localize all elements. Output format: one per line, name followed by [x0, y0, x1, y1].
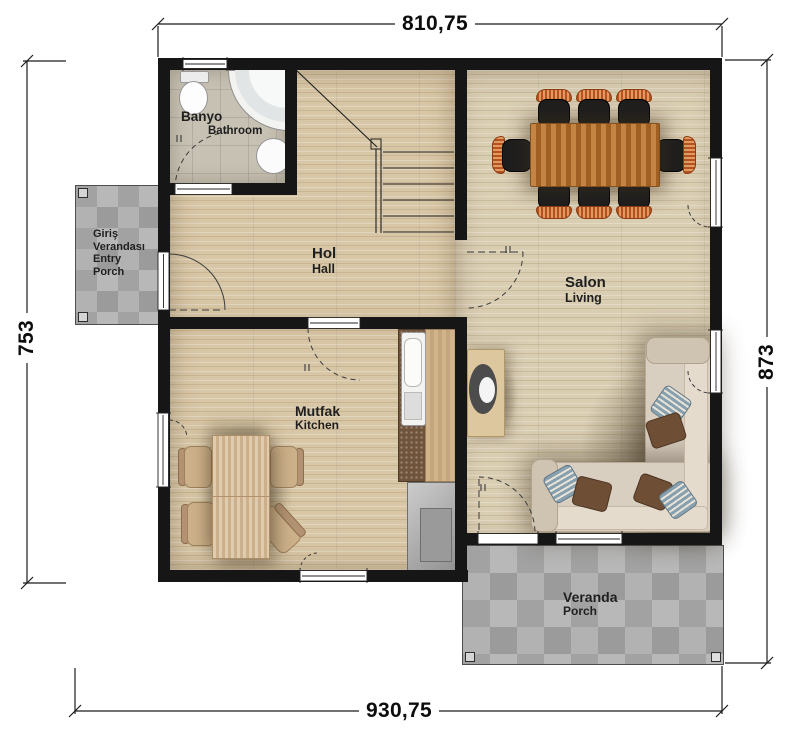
salon-label-tr: Salon [565, 274, 606, 291]
hall-label: Hol Hall [312, 245, 336, 277]
salon-label: Salon Living [565, 274, 606, 306]
window-kitchen-bottom [300, 568, 367, 583]
entry-porch-label-en: Entry Porch [93, 253, 151, 278]
window-swing-arc [300, 553, 318, 571]
entry-porch-label-tr: Giriş Verandası [93, 228, 151, 253]
bathroom-label-tr: Banyo [181, 109, 262, 125]
window-kitchen-left [156, 413, 171, 487]
salon-door-arc [467, 252, 523, 308]
veranda-label-en: Porch [563, 605, 617, 619]
stair-cut-line [295, 69, 377, 147]
kitchen-label-en: Kitchen [295, 419, 340, 433]
stair-newel [371, 139, 381, 149]
veranda-door-arc [479, 477, 535, 533]
hall-label-tr: Hol [312, 245, 336, 262]
staircase [295, 69, 454, 233]
dimension-left: 753 [15, 313, 39, 363]
kitchen-door-arc [308, 328, 360, 380]
door-arcs [169, 132, 710, 571]
entry-door-arc [169, 254, 225, 310]
plan-linework [0, 0, 794, 738]
window-swing-arc [688, 371, 710, 393]
veranda-label-tr: Veranda [563, 589, 617, 605]
floor-plan-canvas: Banyo Bathroom Hol Hall Salon Living Mut… [0, 0, 794, 738]
salon-label-en: Living [565, 291, 606, 305]
window-swing-arc [688, 205, 710, 227]
door-leaf-bathroom [175, 184, 232, 195]
dimension-lines [21, 18, 773, 717]
door-leaf-entry [158, 252, 169, 310]
window-salon-right-1 [708, 158, 723, 227]
bathroom-label: Banyo Bathroom [181, 109, 262, 138]
window-salon-right-2 [708, 330, 723, 393]
dimension-right: 873 [755, 337, 779, 387]
kitchen-label-tr: Mutfak [295, 403, 340, 419]
dimension-bottom: 930,75 [359, 699, 439, 723]
window-bathroom-top [183, 57, 227, 71]
veranda-label: Veranda Porch [563, 589, 617, 619]
window-salon-veranda [556, 531, 622, 546]
entry-porch-label: Giriş Verandası Entry Porch [93, 228, 151, 279]
kitchen-label: Mutfak Kitchen [295, 403, 340, 433]
door-leaf-kitchen [308, 318, 360, 329]
hall-label-en: Hall [312, 262, 336, 276]
dimension-top: 810,75 [395, 12, 475, 36]
door-opening-veranda [478, 531, 538, 546]
bathroom-door-arc [175, 132, 232, 189]
window-swing-arc [169, 420, 187, 438]
bathroom-label-en: Bathroom [208, 125, 262, 138]
